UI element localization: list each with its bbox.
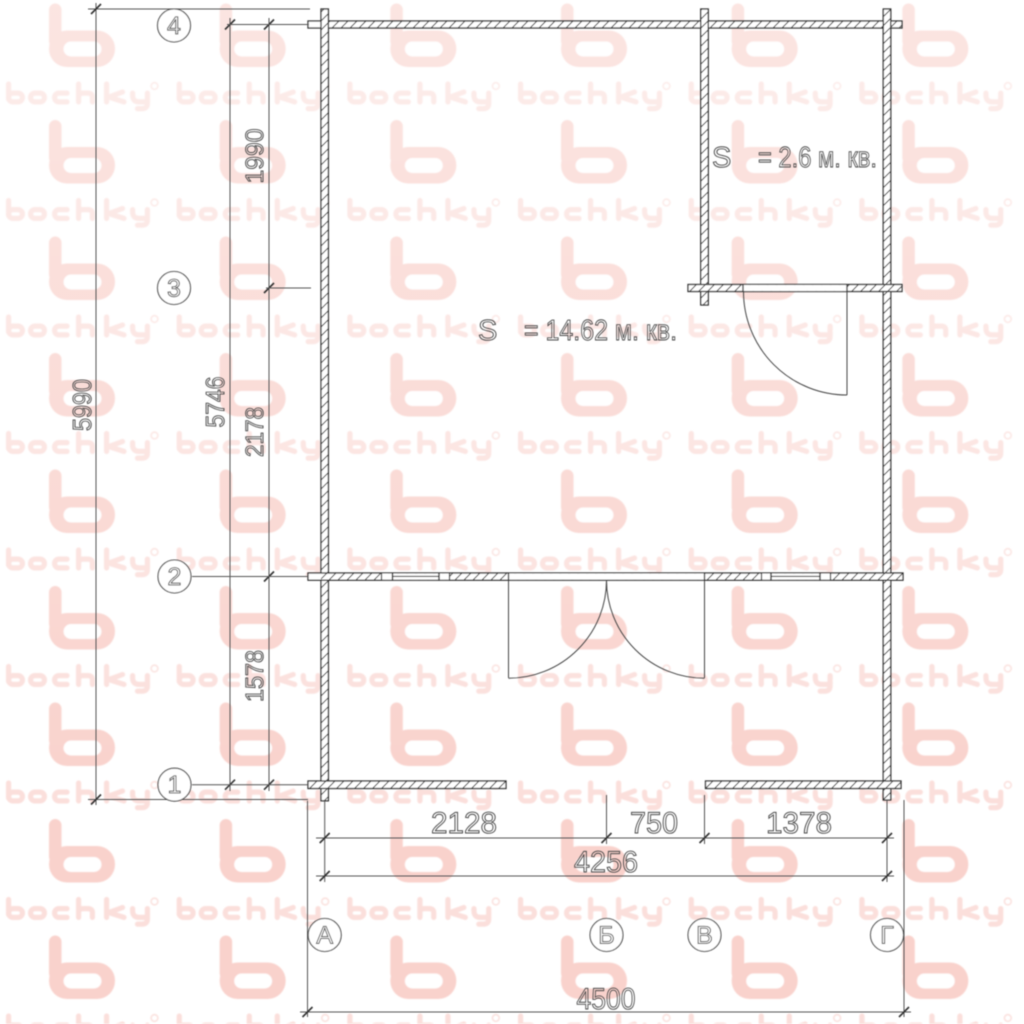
svg-text:2128: 2128: [431, 807, 497, 840]
svg-text:3: 3: [167, 275, 181, 303]
svg-text:4256: 4256: [574, 846, 638, 879]
svg-text:1378: 1378: [766, 807, 832, 840]
svg-text:А: А: [316, 922, 333, 950]
svg-text:S: S: [712, 142, 731, 174]
svg-text:5746: 5746: [200, 377, 230, 428]
svg-text:1578: 1578: [241, 650, 269, 702]
svg-text:S: S: [478, 315, 497, 347]
svg-text:4500: 4500: [577, 983, 636, 1016]
svg-text:2178: 2178: [241, 407, 269, 457]
svg-text:5990: 5990: [67, 379, 97, 431]
svg-text:Б: Б: [598, 922, 614, 950]
svg-text:В: В: [696, 922, 713, 950]
svg-text:750: 750: [630, 807, 678, 840]
svg-text:= 2.6 м. кв.: = 2.6 м. кв.: [758, 142, 877, 174]
svg-text:= 14.62 м. кв.: = 14.62 м. кв.: [524, 315, 677, 347]
svg-text:4: 4: [167, 12, 181, 40]
svg-text:2: 2: [168, 563, 182, 591]
svg-text:1990: 1990: [241, 129, 269, 184]
svg-text:Г: Г: [880, 922, 894, 950]
svg-text:1: 1: [168, 771, 182, 799]
